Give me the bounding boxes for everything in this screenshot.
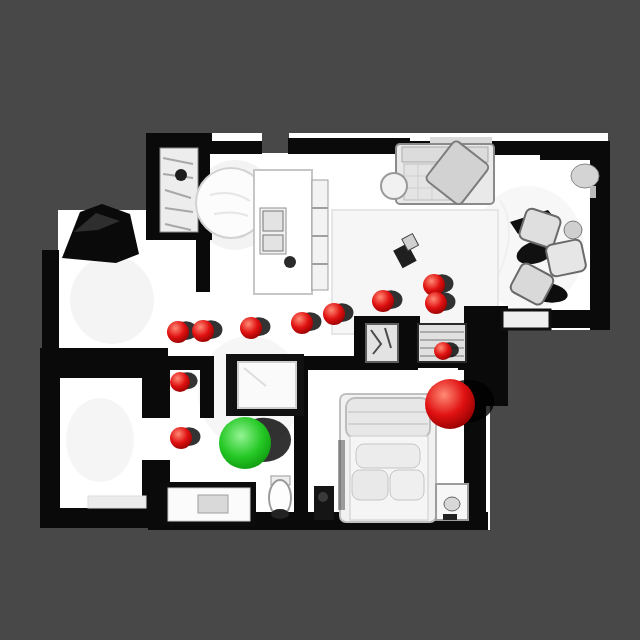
waypoint-marker-1 [167,321,189,343]
closet-shelf [502,310,550,329]
waypoint-marker-4 [291,312,313,334]
faucet [284,256,296,268]
waypoint-marker-10 [170,372,190,392]
waypoint-marker-2 [192,320,214,342]
scene-canvas[interactable] [0,0,640,640]
vanity [160,482,256,526]
hall-chair [366,324,398,362]
waypoint-marker-5 [323,303,345,325]
pillow [356,444,420,468]
waypoint-marker-3 [240,317,262,339]
sink-basin [263,235,283,251]
drawer [198,495,228,513]
sofa [381,137,494,206]
target-marker [425,379,475,429]
waypoint-marker-6 [372,290,394,312]
scan-viewer [0,0,640,640]
shower [226,354,304,416]
toilet [269,476,291,519]
waypoint-marker-9 [434,342,452,360]
goal-marker [219,417,271,469]
kitchen-island [254,170,312,294]
floor-lamp-object [314,486,334,520]
bed [338,394,436,522]
pillow [352,470,388,500]
ottoman [381,173,407,199]
kitchen-cabinets [312,180,328,290]
pillow [390,470,424,500]
utility-shelves [160,148,198,232]
sink-basin [263,211,283,231]
waypoint-marker-11 [170,427,192,449]
waypoint-marker-8 [425,292,447,314]
nightstand [436,484,468,520]
